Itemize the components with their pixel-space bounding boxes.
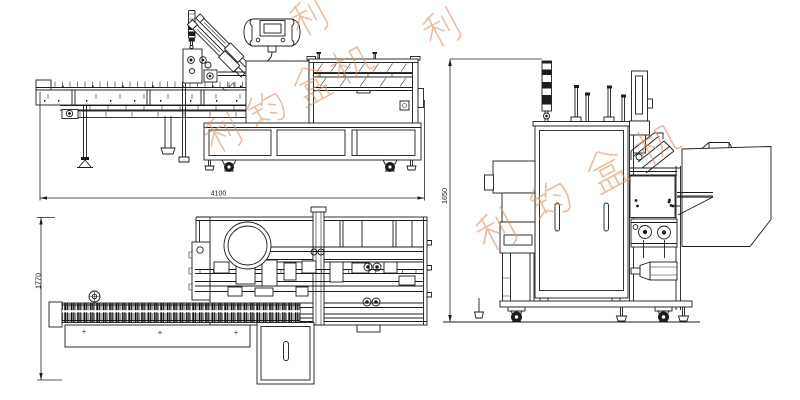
svg-text:1650: 1650 bbox=[440, 188, 449, 204]
svg-text:1770: 1770 bbox=[34, 273, 43, 289]
svg-text:4100: 4100 bbox=[211, 191, 227, 198]
